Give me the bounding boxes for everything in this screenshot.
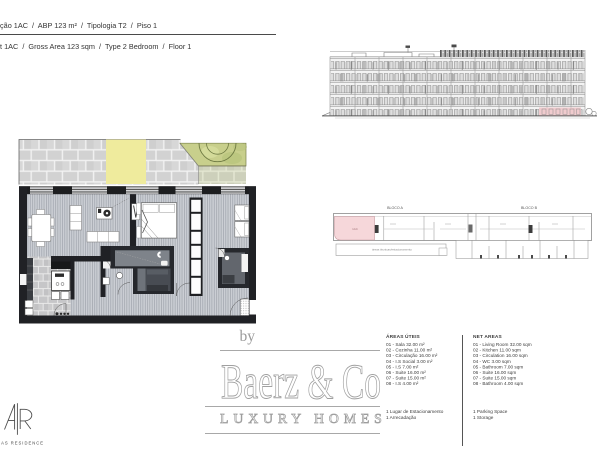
svg-text:BLOCO B: BLOCO B	[521, 206, 538, 210]
svg-text:1AC: 1AC	[352, 227, 359, 231]
svg-text:BLOCO A: BLOCO A	[387, 206, 403, 210]
svg-text:áreas técnicas/estacionamento: áreas técnicas/estacionamento	[372, 247, 412, 251]
